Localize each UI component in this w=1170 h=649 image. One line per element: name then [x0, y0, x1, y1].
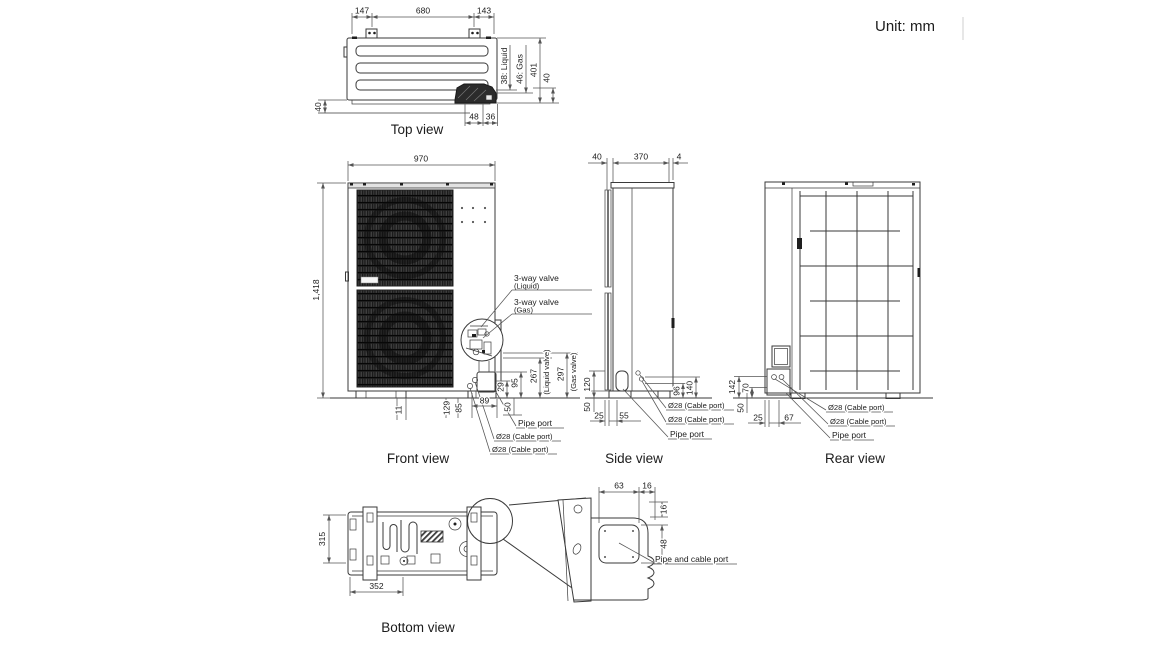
- top-view: 147 680 143 40 48 36 38: Liquid 46: Gas …: [313, 6, 559, 138]
- foot-bracket-left: [363, 507, 377, 580]
- dim-11: 11: [394, 405, 404, 414]
- dim-70: 70: [741, 383, 751, 393]
- unit-note: Unit: mm: [875, 18, 935, 35]
- dim-267-note: (Liquid valve): [542, 349, 551, 395]
- dim-129: 129: [442, 401, 452, 415]
- dim-50-front: 50: [503, 402, 513, 412]
- dim-38-liquid: 38: Liquid: [499, 47, 509, 84]
- dim-16-right: 16: [659, 505, 669, 515]
- side-view-label: Side view: [605, 451, 663, 466]
- side-foot-rear: [658, 391, 670, 398]
- dim-40-left: 40: [313, 102, 323, 112]
- dim-96: 96: [672, 386, 682, 396]
- callout-pipe-and-cable-port: Pipe and cable port: [655, 554, 729, 564]
- dim-370: 370: [634, 152, 648, 162]
- front-view-label: Front view: [387, 451, 450, 466]
- dim-40-side: 40: [592, 152, 602, 162]
- dim-29: 29: [496, 382, 506, 392]
- dim-297: 297: [556, 367, 566, 381]
- dim-63: 63: [614, 481, 624, 491]
- side-view: 40 370 4 120 50 25 55 96 140 Ø28 (Cable …: [582, 152, 734, 467]
- callout-cable-port-front-2: Ø28 (Cable port): [492, 445, 549, 454]
- dim-1418: 1,418: [311, 279, 321, 301]
- bottom-view: 315 352 Bottom view: [317, 499, 513, 636]
- dim-4: 4: [677, 152, 682, 162]
- dim-50-rear: 50: [736, 403, 746, 413]
- dim-352: 352: [369, 581, 383, 591]
- dim-55: 55: [619, 411, 629, 421]
- dim-16-top: 16: [642, 481, 652, 491]
- dim-48: 48: [469, 112, 479, 122]
- rear-view: 142 70 50 25 67 Ø28 (Cable port) Ø28 (Ca…: [727, 182, 933, 466]
- callout-3way-liquid-sub: (Liquid): [514, 282, 540, 291]
- fan-grille-lower: [357, 290, 453, 387]
- dim-40-right: 40: [542, 73, 552, 83]
- side-view-unit-body: [585, 183, 712, 399]
- foot-bracket-right: [467, 507, 481, 580]
- dim-48-detail: 48: [659, 539, 669, 549]
- top-view-unit-body: [318, 29, 497, 113]
- bottom-view-label: Bottom view: [381, 620, 455, 635]
- brand-label-chip: [361, 277, 378, 283]
- dim-46-gas: 46: Gas: [515, 54, 525, 84]
- front-foot-left: [356, 391, 406, 398]
- dim-142: 142: [727, 380, 737, 394]
- dim-120: 120: [582, 377, 592, 391]
- dim-25-rear: 25: [753, 413, 763, 423]
- rear-view-unit-body: [733, 182, 933, 399]
- callout-cable-port-side-2: Ø28 (Cable port): [668, 415, 725, 424]
- dim-970: 970: [414, 154, 428, 164]
- rear-view-label: Rear view: [825, 451, 885, 466]
- bottom-view-base-plate: [348, 499, 513, 581]
- dim-680: 680: [416, 6, 430, 16]
- technical-drawing: 147 680 143 40 48 36 38: Liquid 46: Gas …: [0, 0, 1170, 649]
- dimension-drawing-page: 147 680 143 40 48 36 38: Liquid 46: Gas …: [0, 0, 1170, 649]
- dim-147: 147: [355, 6, 369, 16]
- dim-315: 315: [317, 532, 327, 546]
- dim-95: 95: [510, 378, 520, 388]
- callout-pipe-port-side: Pipe port: [670, 429, 705, 439]
- top-view-label: Top view: [391, 122, 444, 137]
- callout-pipe-port-rear: Pipe port: [832, 430, 867, 440]
- dim-85: 85: [454, 403, 464, 413]
- hatched-plate: [421, 531, 443, 542]
- front-view: 970 1,418 3-way valve (Liquid) 3-way val…: [311, 154, 592, 467]
- dim-297-note: (Gas valve): [569, 352, 578, 391]
- dim-36: 36: [486, 112, 496, 122]
- dim-267: 267: [529, 369, 539, 383]
- dim-67: 67: [784, 413, 794, 423]
- fan-grille-upper: [357, 190, 453, 286]
- detail-view: 63 16 16 48 Pipe and cable port: [503, 481, 737, 603]
- dim-25-side: 25: [594, 411, 604, 421]
- dim-89: 89: [480, 396, 490, 406]
- dim-401: 401: [529, 63, 539, 77]
- detail-drawing: [558, 498, 654, 602]
- callout-cable-port-side-1: Ø28 (Cable port): [668, 401, 725, 410]
- callout-cable-port-front-1: Ø28 (Cable port): [496, 432, 553, 441]
- callout-cable-port-rear-1: Ø28 (Cable port): [828, 403, 885, 412]
- callout-pipe-port-front: Pipe port: [518, 418, 553, 428]
- callout-3way-gas-sub: (Gas): [514, 306, 533, 315]
- callout-cable-port-rear-2: Ø28 (Cable port): [830, 417, 887, 426]
- dim-140: 140: [685, 381, 695, 395]
- dim-50-side: 50: [582, 402, 592, 412]
- dim-143: 143: [477, 6, 491, 16]
